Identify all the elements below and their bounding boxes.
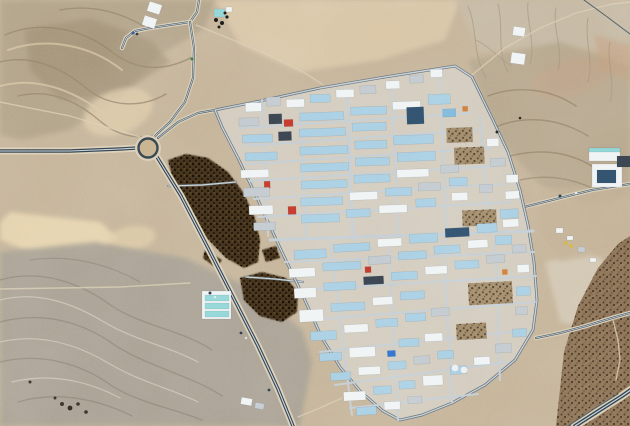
film-grain-overlay (0, 0, 630, 426)
satellite-image (0, 0, 630, 426)
satellite-image-container (0, 0, 630, 426)
